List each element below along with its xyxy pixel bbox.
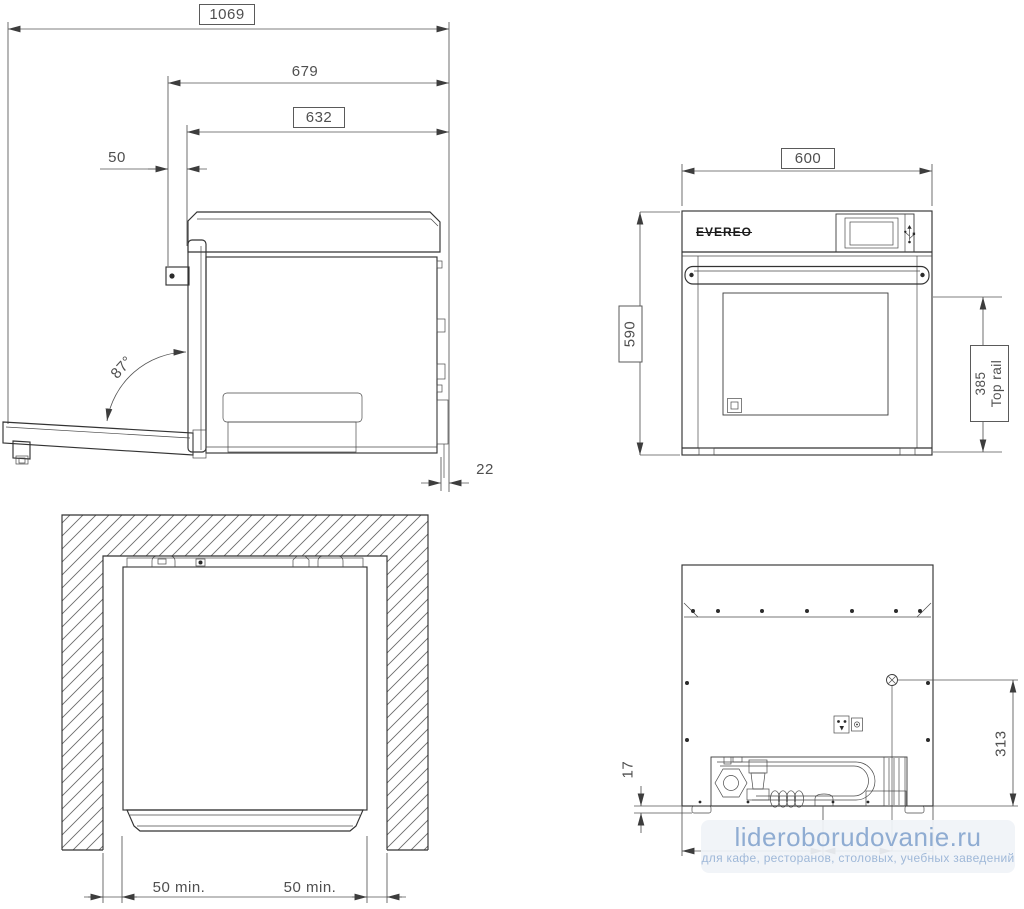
side-oven-body	[166, 212, 448, 478]
oven-top-view	[123, 556, 367, 831]
usb-icon	[904, 225, 915, 243]
dim-top-rail: 385 Top rail	[970, 345, 1009, 422]
dim-rear-gap: 22	[468, 461, 502, 478]
dim-width: 600	[781, 148, 835, 169]
watermark-tagline: для кафе, ресторанов, столовых, учебных …	[701, 851, 1015, 865]
compressor-unit	[699, 757, 907, 807]
dim-base-gap: 17	[619, 755, 636, 785]
watermark: lideroborudovanie.ru для кафе, ресторано…	[701, 820, 1015, 873]
top-view-drawing	[40, 500, 460, 909]
watermark-site[interactable]: lideroborudovanie.ru	[701, 823, 1015, 851]
door-handle	[685, 267, 929, 285]
niche-walls	[62, 515, 428, 850]
control-panel	[836, 214, 914, 252]
top-dimension-lines	[84, 836, 406, 903]
side-view-drawing	[0, 0, 520, 500]
dim-connector-height: 313	[992, 722, 1009, 766]
front-dimension-lines	[640, 164, 1002, 455]
door-window	[723, 293, 888, 415]
dim-body-depth: 632	[293, 107, 345, 128]
dim-front-offset: 50	[99, 149, 135, 166]
front-view-drawing	[590, 140, 1024, 470]
dim-overall-depth: 1069	[199, 4, 255, 25]
dim-left-clearance: 50 min.	[144, 879, 214, 896]
dim-top-rail-value: 385	[973, 351, 989, 416]
dim-height: 590	[619, 306, 643, 363]
technical-drawing-page: 1069 679 632 50 87° 22 600 590 385 Top r…	[0, 0, 1024, 909]
dim-top-rail-label: Top rail	[989, 351, 1005, 416]
side-open-door	[3, 422, 206, 464]
dim-right-clearance: 50 min.	[275, 879, 345, 896]
back-panel	[682, 565, 933, 851]
door-top-view	[127, 810, 363, 831]
dim-depth-with-door: 679	[283, 63, 327, 80]
front-oven	[682, 211, 932, 455]
power-socket-icons	[834, 716, 863, 733]
brand-logo: EVEREO	[696, 224, 752, 241]
